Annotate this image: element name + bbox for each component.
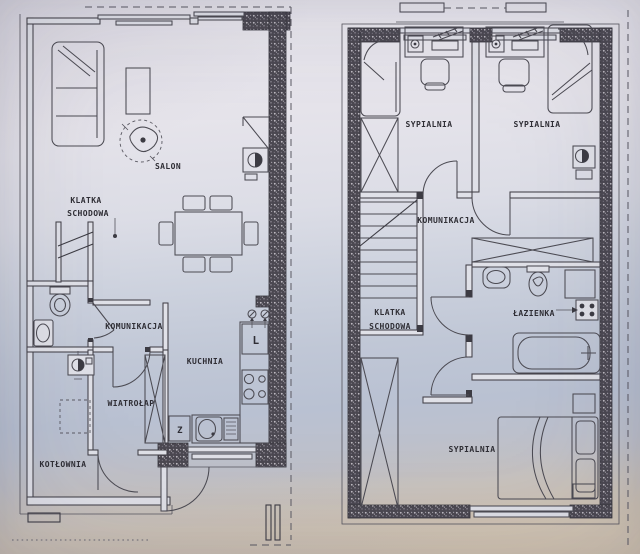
porch-column [266,505,280,540]
bathroom-sink-icon [483,267,510,288]
floor-plan-photo: { "ground_floor": { "rooms": { "salon": … [0,0,640,554]
room-label-sypialnia-master: SYPIALNIA [449,445,496,454]
room-label-sypialnia-left: SYPIALNIA [406,120,453,129]
room-label-wiatrolap: WIATROŁAP [108,399,155,408]
gas-meter-icons [248,296,270,328]
boiler-meter-icon [68,351,94,379]
stove-icon [242,370,268,404]
toilet-icon [50,287,70,316]
floor-plan-drawing: L Z [0,0,640,554]
wc-sink-icon [34,320,53,346]
wc-door [93,303,114,338]
dishwasher: Z [169,416,190,441]
bedroom-left-door [423,161,457,195]
kitchen-sink-icon [196,417,238,441]
chair-right [499,59,529,92]
sofa [52,42,104,146]
hall-wardrobe-x [472,238,593,262]
room-label-klatka-1: KLATKA [70,196,101,205]
room-label-lazienka: ŁAZIENKA [512,309,555,318]
fridge-symbol: L [252,334,259,347]
chair-left [421,59,449,90]
ground-floor-plan: L Z [12,7,291,545]
bedroom-window-bottom [470,506,573,517]
fridge: L [242,324,268,354]
bed-single-left [361,32,400,116]
window-top-2 [194,12,244,16]
room-label-sypialnia-right: SYPIALNIA [514,120,561,129]
staircase-upper [360,200,417,298]
room-label-salon: SALON [155,162,181,171]
plant [120,120,162,162]
staircase-ground [56,218,117,282]
bedroom-right-door [472,198,510,235]
wiatrolap-door [113,352,150,387]
salon-windows [98,12,244,25]
bed-double [498,394,598,499]
room-label-komunikacja: KOMUNIKACJA [105,322,162,331]
room-label-kuchnia: KUCHNIA [187,357,224,366]
window-top-1 [98,15,190,19]
room-label-kotlownia: KOTŁOWNIA [40,460,87,469]
bathtub-icon [513,333,600,373]
master-wardrobe-x [361,358,398,508]
washer-meter-icon [556,270,598,320]
party-wall-hatched [269,12,286,467]
entrance-facade-window [188,447,256,459]
kotlownia-door [98,455,138,492]
boiler-reserved-area [60,400,90,433]
room-label-komunikacja-upper: KOMUNIKACJA [417,216,474,225]
nightstand-top [573,394,595,413]
room-label-klatka-upper-2: SCHODOWA [369,322,411,331]
tv-corner-cabinet [243,117,269,180]
bathroom-door [431,297,469,335]
bedroom1-wardrobe-x [361,118,398,192]
bedroom-master-door [431,357,469,395]
coffee-table [126,68,150,114]
dining-set [159,196,258,272]
bathroom-toilet-icon [527,266,549,296]
electric-meter-icon [573,146,595,179]
upper-floor-plan: SYPIALNIA SYPIALNIA KOMUNIKACJA KLATKA S… [342,3,628,548]
room-label-klatka-2: SCHODOWA [67,209,109,218]
room-label-klatka-upper-1: KLATKA [374,308,405,317]
dishwasher-symbol: Z [177,426,183,436]
